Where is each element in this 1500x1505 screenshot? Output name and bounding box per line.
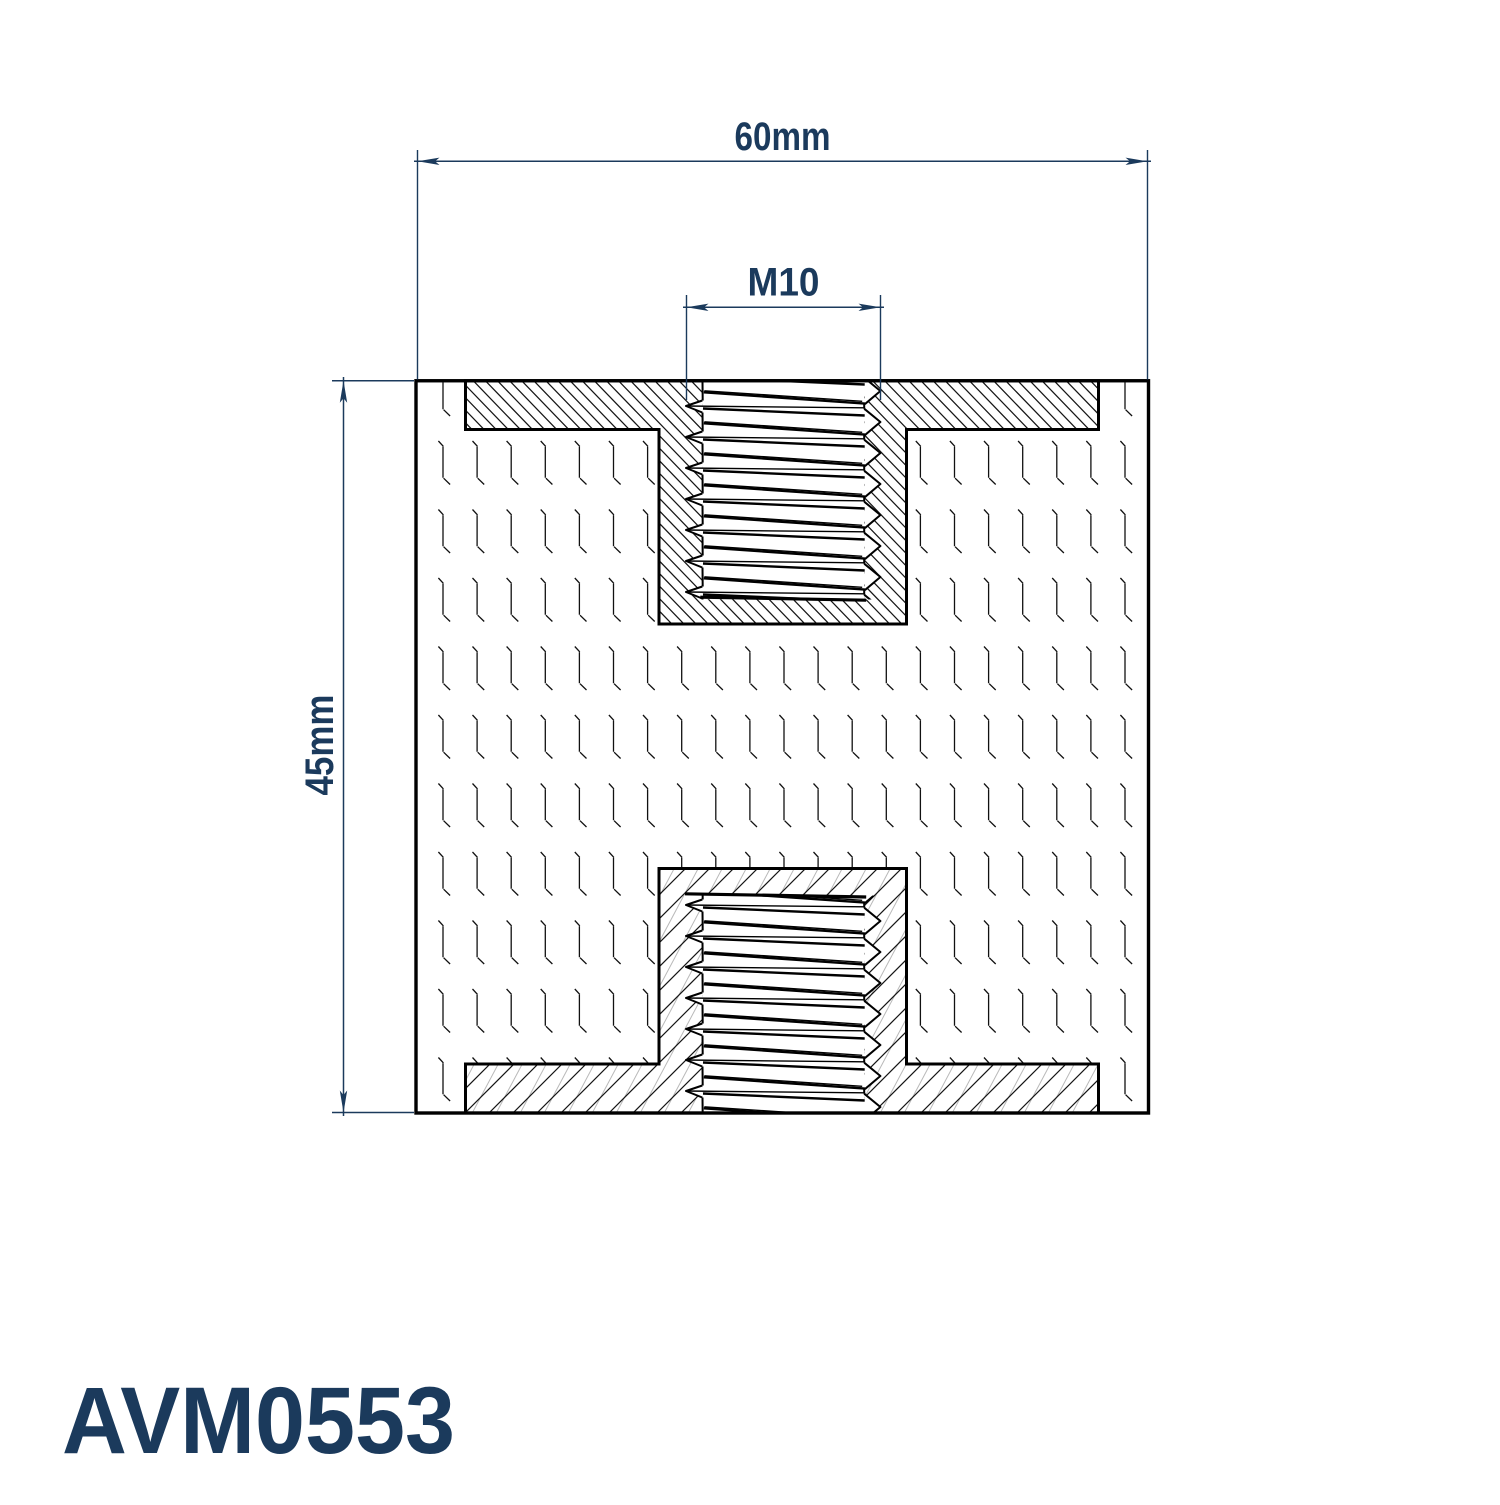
svg-text:M10: M10 <box>748 261 820 305</box>
svg-text:45mm: 45mm <box>298 695 342 796</box>
svg-text:60mm: 60mm <box>735 115 831 159</box>
svg-text:AVM0553: AVM0553 <box>62 1368 455 1474</box>
